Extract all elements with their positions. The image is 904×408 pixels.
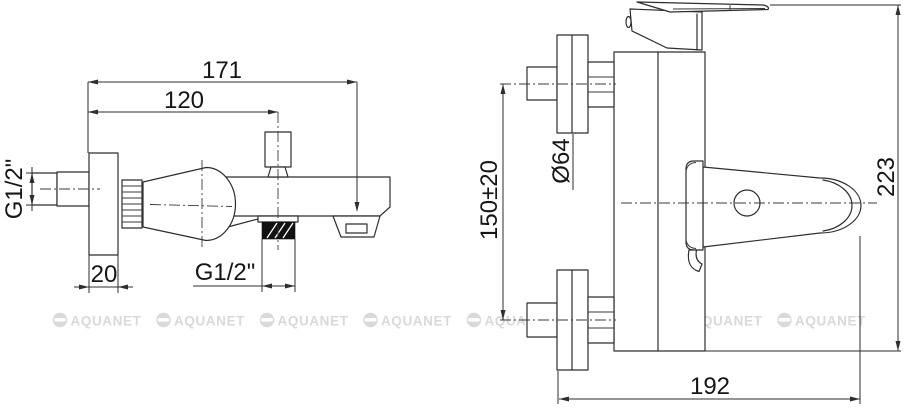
watermark-text: AQUANET xyxy=(278,314,349,329)
dim-outlet-thread: G1/2" xyxy=(193,239,295,292)
dim-plate-depth-label: 20 xyxy=(91,261,118,288)
technical-drawing-canvas: AQUANET AQUANET AQUANET AQUANET AQUANET … xyxy=(0,0,904,408)
aquanet-logo-icon: AQUANET xyxy=(260,313,349,329)
dim-total-height-label: 223 xyxy=(873,157,900,197)
watermark-text: AQUANET xyxy=(71,314,142,329)
dim-plate-depth: 20 xyxy=(74,255,133,293)
watermark-row: AQUANET AQUANET AQUANET AQUANET AQUANET … xyxy=(53,313,866,329)
tub-spout xyxy=(686,161,861,272)
handle-cone xyxy=(143,168,236,241)
aquanet-logo-icon: AQUANET xyxy=(777,313,866,329)
handshower-holder xyxy=(333,216,380,237)
front-view: 150±20 Ø64 223 192 xyxy=(476,2,901,404)
hex-nut xyxy=(588,62,614,107)
handle-indicator-dot xyxy=(626,17,631,28)
dim-outlet-thread-label: G1/2" xyxy=(195,259,256,286)
dim-inlet-spacing: 150±20 xyxy=(476,84,506,320)
aquanet-logo-icon: AQUANET xyxy=(363,313,452,329)
watermark-text: AQUANET xyxy=(381,314,452,329)
dim-flange-diameter-label: Ø64 xyxy=(548,138,575,183)
watermark-text: AQUANET xyxy=(795,314,866,329)
dim-diverter-offset: 120 xyxy=(88,87,278,115)
dim-inlet-thread-label: G1/2" xyxy=(1,159,28,220)
pipe-stub xyxy=(527,67,557,100)
dim-total-length-label: 171 xyxy=(202,57,242,84)
aquanet-logo-icon: AQUANET xyxy=(156,313,245,329)
aquanet-logo-icon: AQUANET xyxy=(53,313,142,329)
dim-total-width-label: 192 xyxy=(690,373,730,400)
mixer-dimension-drawing: AQUANET AQUANET AQUANET AQUANET AQUANET … xyxy=(0,0,904,408)
watermark-text: AQUANET xyxy=(174,314,245,329)
wall-plate xyxy=(89,153,118,255)
side-view: 171 120 G1/2" 20 xyxy=(1,57,390,293)
dim-diverter-offset-label: 120 xyxy=(164,87,204,114)
knurled-ring xyxy=(122,180,142,228)
mixer-handle xyxy=(626,2,768,50)
dim-flange-diameter: Ø64 xyxy=(548,134,575,190)
dim-inlet-spacing-label: 150±20 xyxy=(476,160,503,240)
